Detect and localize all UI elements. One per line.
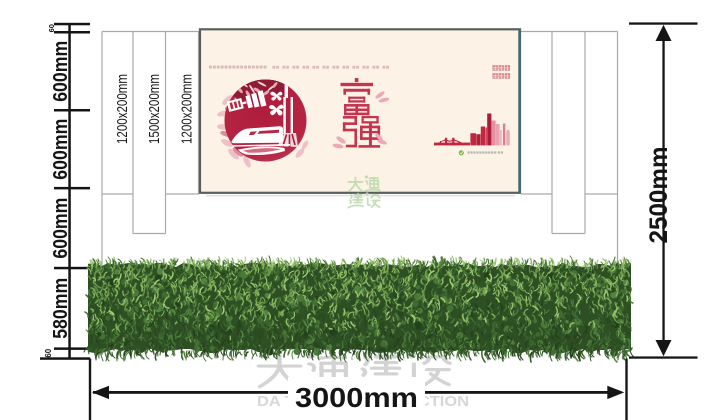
svg-text:1200x200mm: 1200x200mm xyxy=(180,74,196,144)
svg-text:580mm: 580mm xyxy=(50,278,72,339)
svg-text:3000mm: 3000mm xyxy=(295,382,418,413)
svg-text:1500x200mm: 1500x200mm xyxy=(147,74,163,144)
svg-text:60: 60 xyxy=(47,24,56,32)
svg-text:1200x200mm: 1200x200mm xyxy=(115,74,131,144)
svg-text:600mm: 600mm xyxy=(50,198,72,259)
svg-text:2500mm: 2500mm xyxy=(645,147,673,244)
svg-text:600mm: 600mm xyxy=(50,119,72,180)
svg-text:60: 60 xyxy=(44,348,53,357)
svg-text:600mm: 600mm xyxy=(50,41,72,102)
